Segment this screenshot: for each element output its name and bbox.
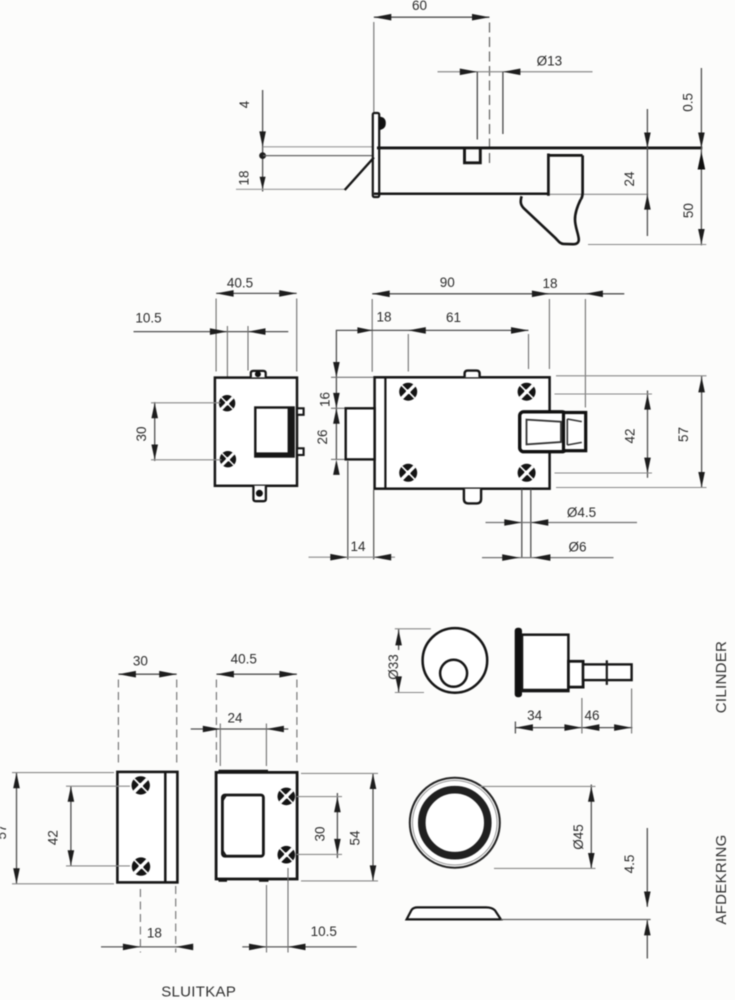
- svg-text:Ø4.5: Ø4.5: [567, 505, 596, 520]
- svg-text:CILINDER: CILINDER: [713, 641, 730, 713]
- svg-text:0.5: 0.5: [680, 93, 695, 112]
- svg-text:42: 42: [623, 428, 638, 443]
- svg-text:10.5: 10.5: [135, 311, 161, 326]
- svg-text:30: 30: [134, 426, 149, 441]
- svg-text:30: 30: [133, 654, 148, 669]
- svg-text:18: 18: [147, 926, 162, 941]
- svg-text:24: 24: [227, 711, 243, 726]
- svg-text:34: 34: [527, 708, 543, 723]
- svg-text:26: 26: [315, 429, 330, 444]
- svg-text:40.5: 40.5: [231, 652, 257, 667]
- svg-text:Ø45: Ø45: [571, 824, 586, 850]
- svg-text:46: 46: [584, 708, 599, 723]
- svg-text:10.5: 10.5: [311, 924, 337, 939]
- svg-text:42: 42: [46, 830, 61, 845]
- svg-text:40.5: 40.5: [227, 276, 253, 291]
- svg-text:24: 24: [622, 171, 637, 187]
- svg-text:SLUITKAP: SLUITKAP: [161, 984, 236, 1000]
- svg-text:Ø13: Ø13: [537, 54, 563, 69]
- svg-text:50: 50: [681, 203, 696, 218]
- svg-text:Ø6: Ø6: [568, 540, 586, 555]
- svg-text:Ø33: Ø33: [386, 654, 401, 680]
- svg-text:14: 14: [350, 539, 366, 554]
- svg-text:30: 30: [312, 826, 327, 841]
- svg-text:18: 18: [237, 170, 252, 185]
- svg-text:18: 18: [376, 310, 391, 325]
- svg-text:60: 60: [412, 0, 427, 13]
- svg-text:57: 57: [0, 824, 9, 839]
- svg-text:18: 18: [542, 276, 557, 291]
- svg-text:54: 54: [348, 830, 363, 846]
- svg-text:4.5: 4.5: [622, 855, 637, 874]
- svg-text:AFDEKRING: AFDEKRING: [713, 834, 730, 924]
- svg-text:90: 90: [440, 275, 455, 290]
- svg-text:16: 16: [318, 392, 333, 407]
- svg-text:61: 61: [446, 310, 461, 325]
- svg-text:4: 4: [237, 100, 252, 108]
- svg-text:57: 57: [676, 427, 691, 442]
